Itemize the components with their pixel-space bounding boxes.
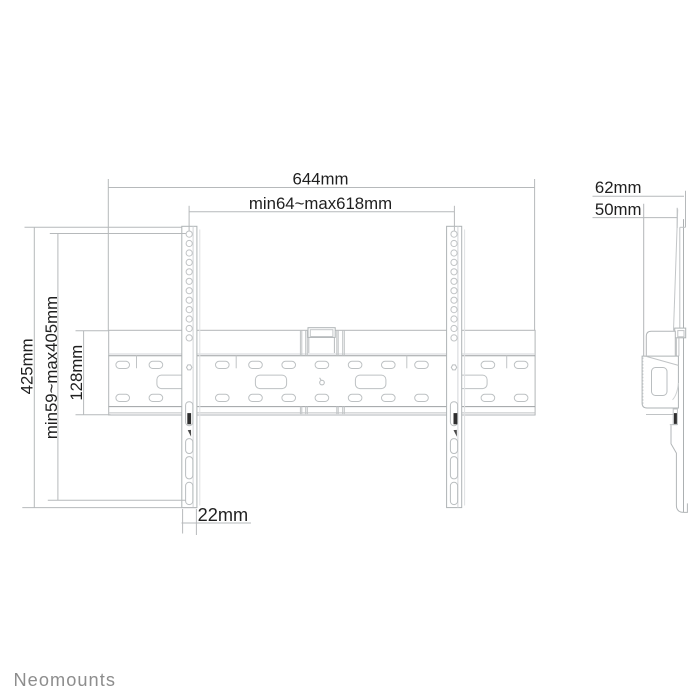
svg-text:min59~max405mm: min59~max405mm	[42, 296, 61, 439]
svg-text:min64~max618mm: min64~max618mm	[249, 194, 392, 213]
svg-text:Neomounts: Neomounts	[14, 670, 116, 690]
svg-text:50mm: 50mm	[595, 200, 642, 219]
svg-text:128mm: 128mm	[67, 345, 86, 401]
svg-text:644mm: 644mm	[293, 170, 349, 189]
svg-text:22mm: 22mm	[198, 505, 249, 525]
svg-text:425mm: 425mm	[18, 338, 37, 394]
svg-text:62mm: 62mm	[595, 178, 642, 197]
